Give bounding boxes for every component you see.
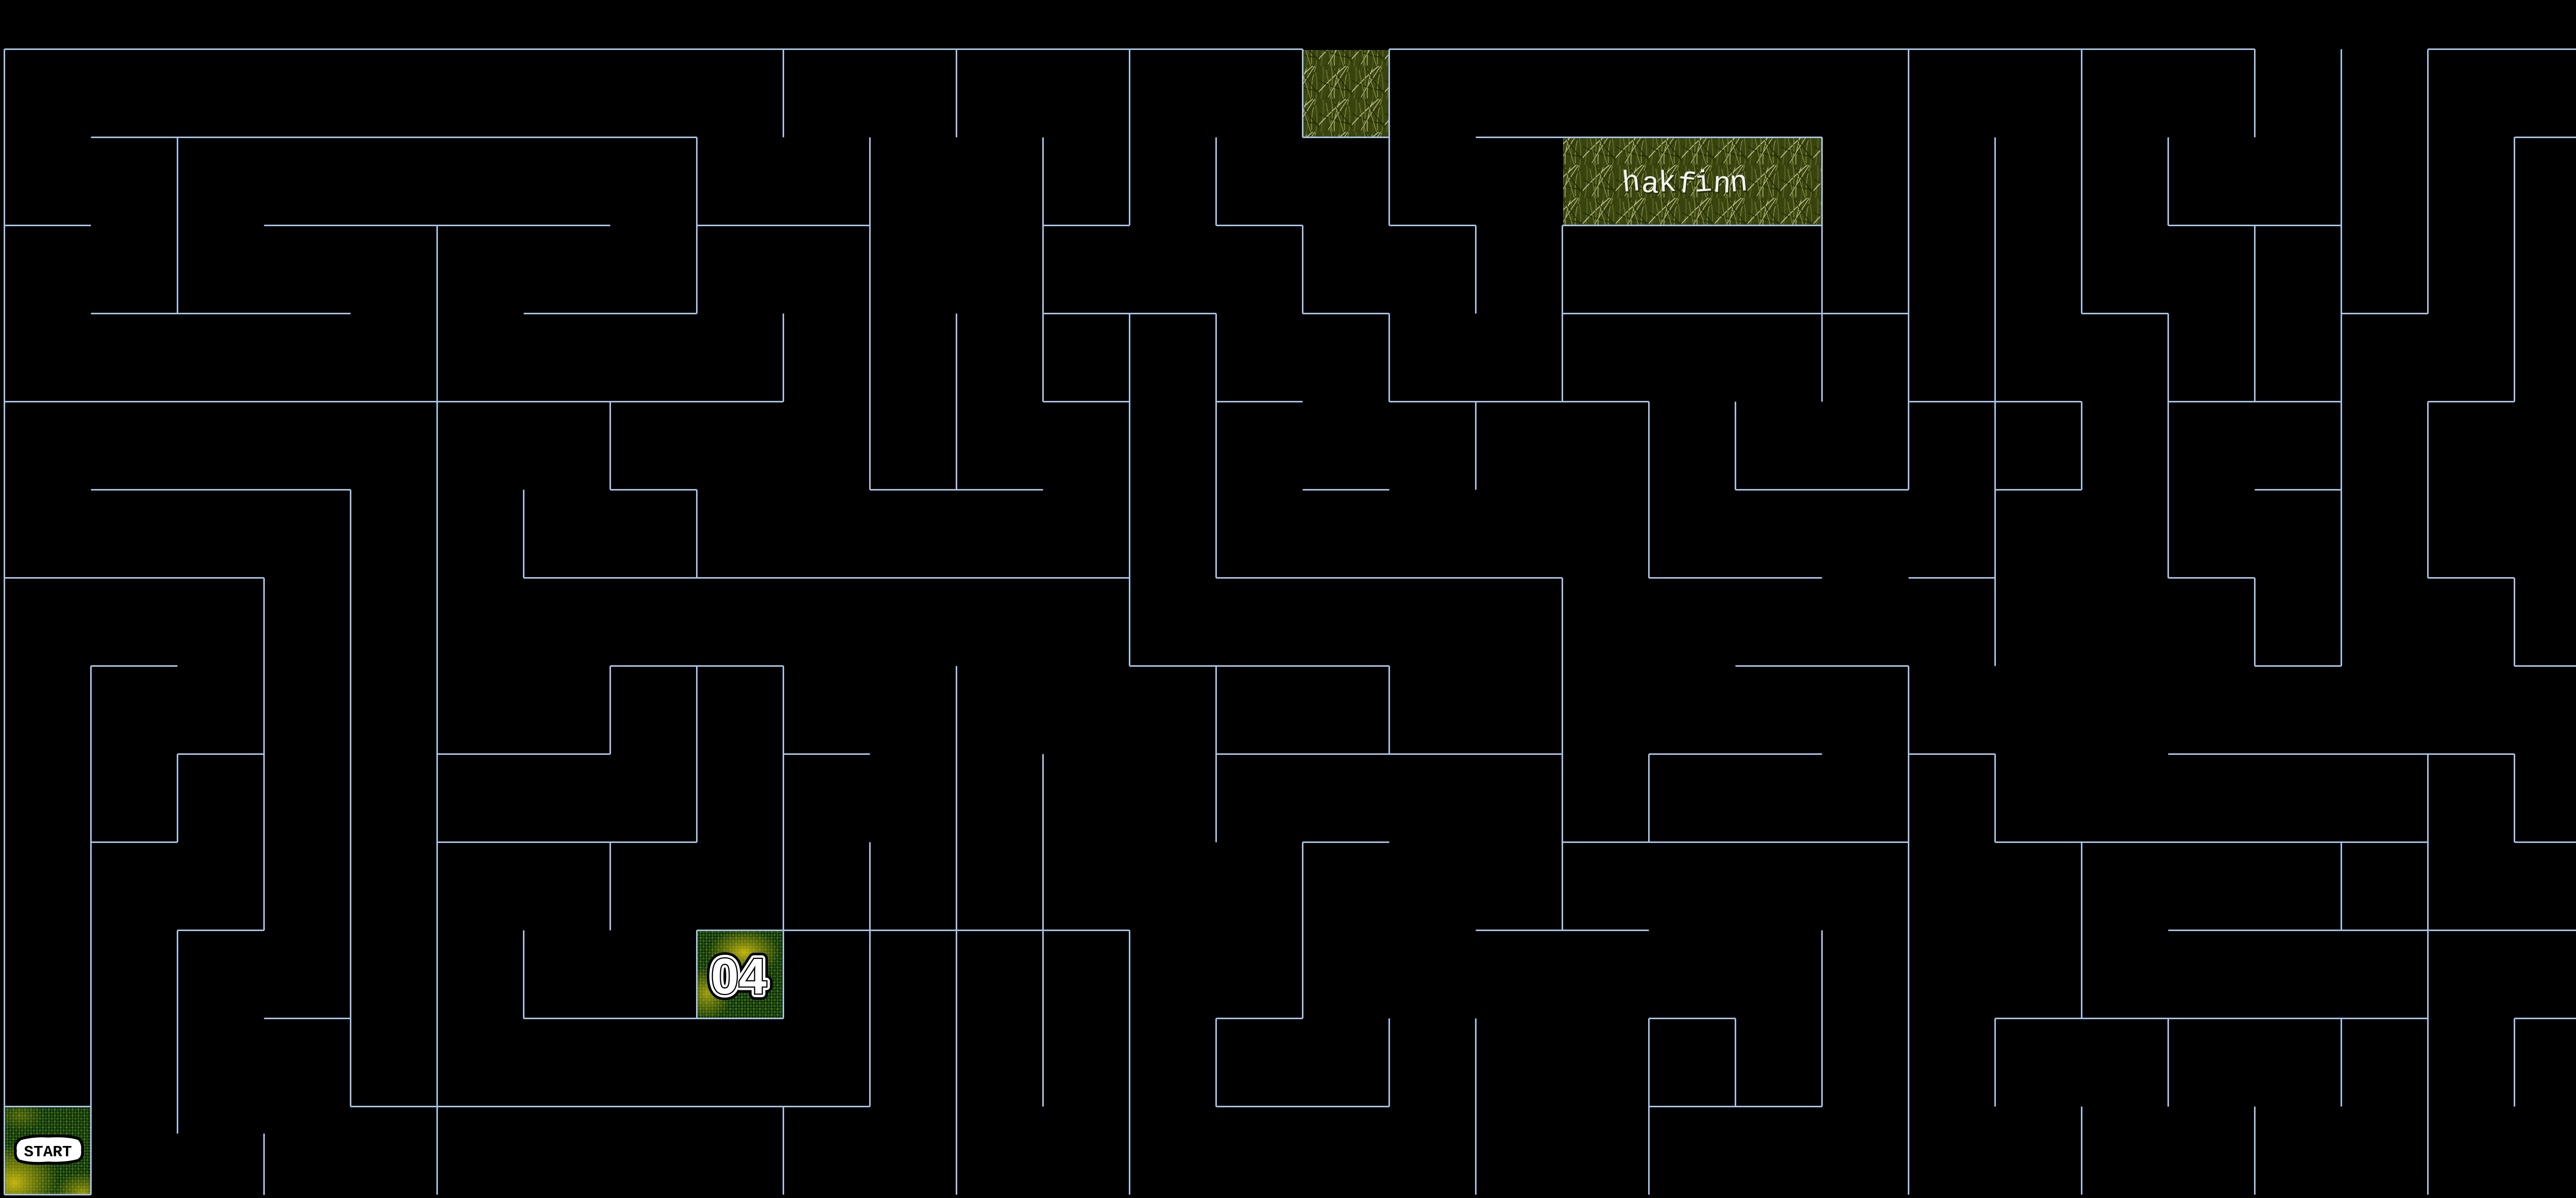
svg-text:START: START <box>24 1143 72 1161</box>
svg-text:04: 04 <box>711 948 767 1004</box>
